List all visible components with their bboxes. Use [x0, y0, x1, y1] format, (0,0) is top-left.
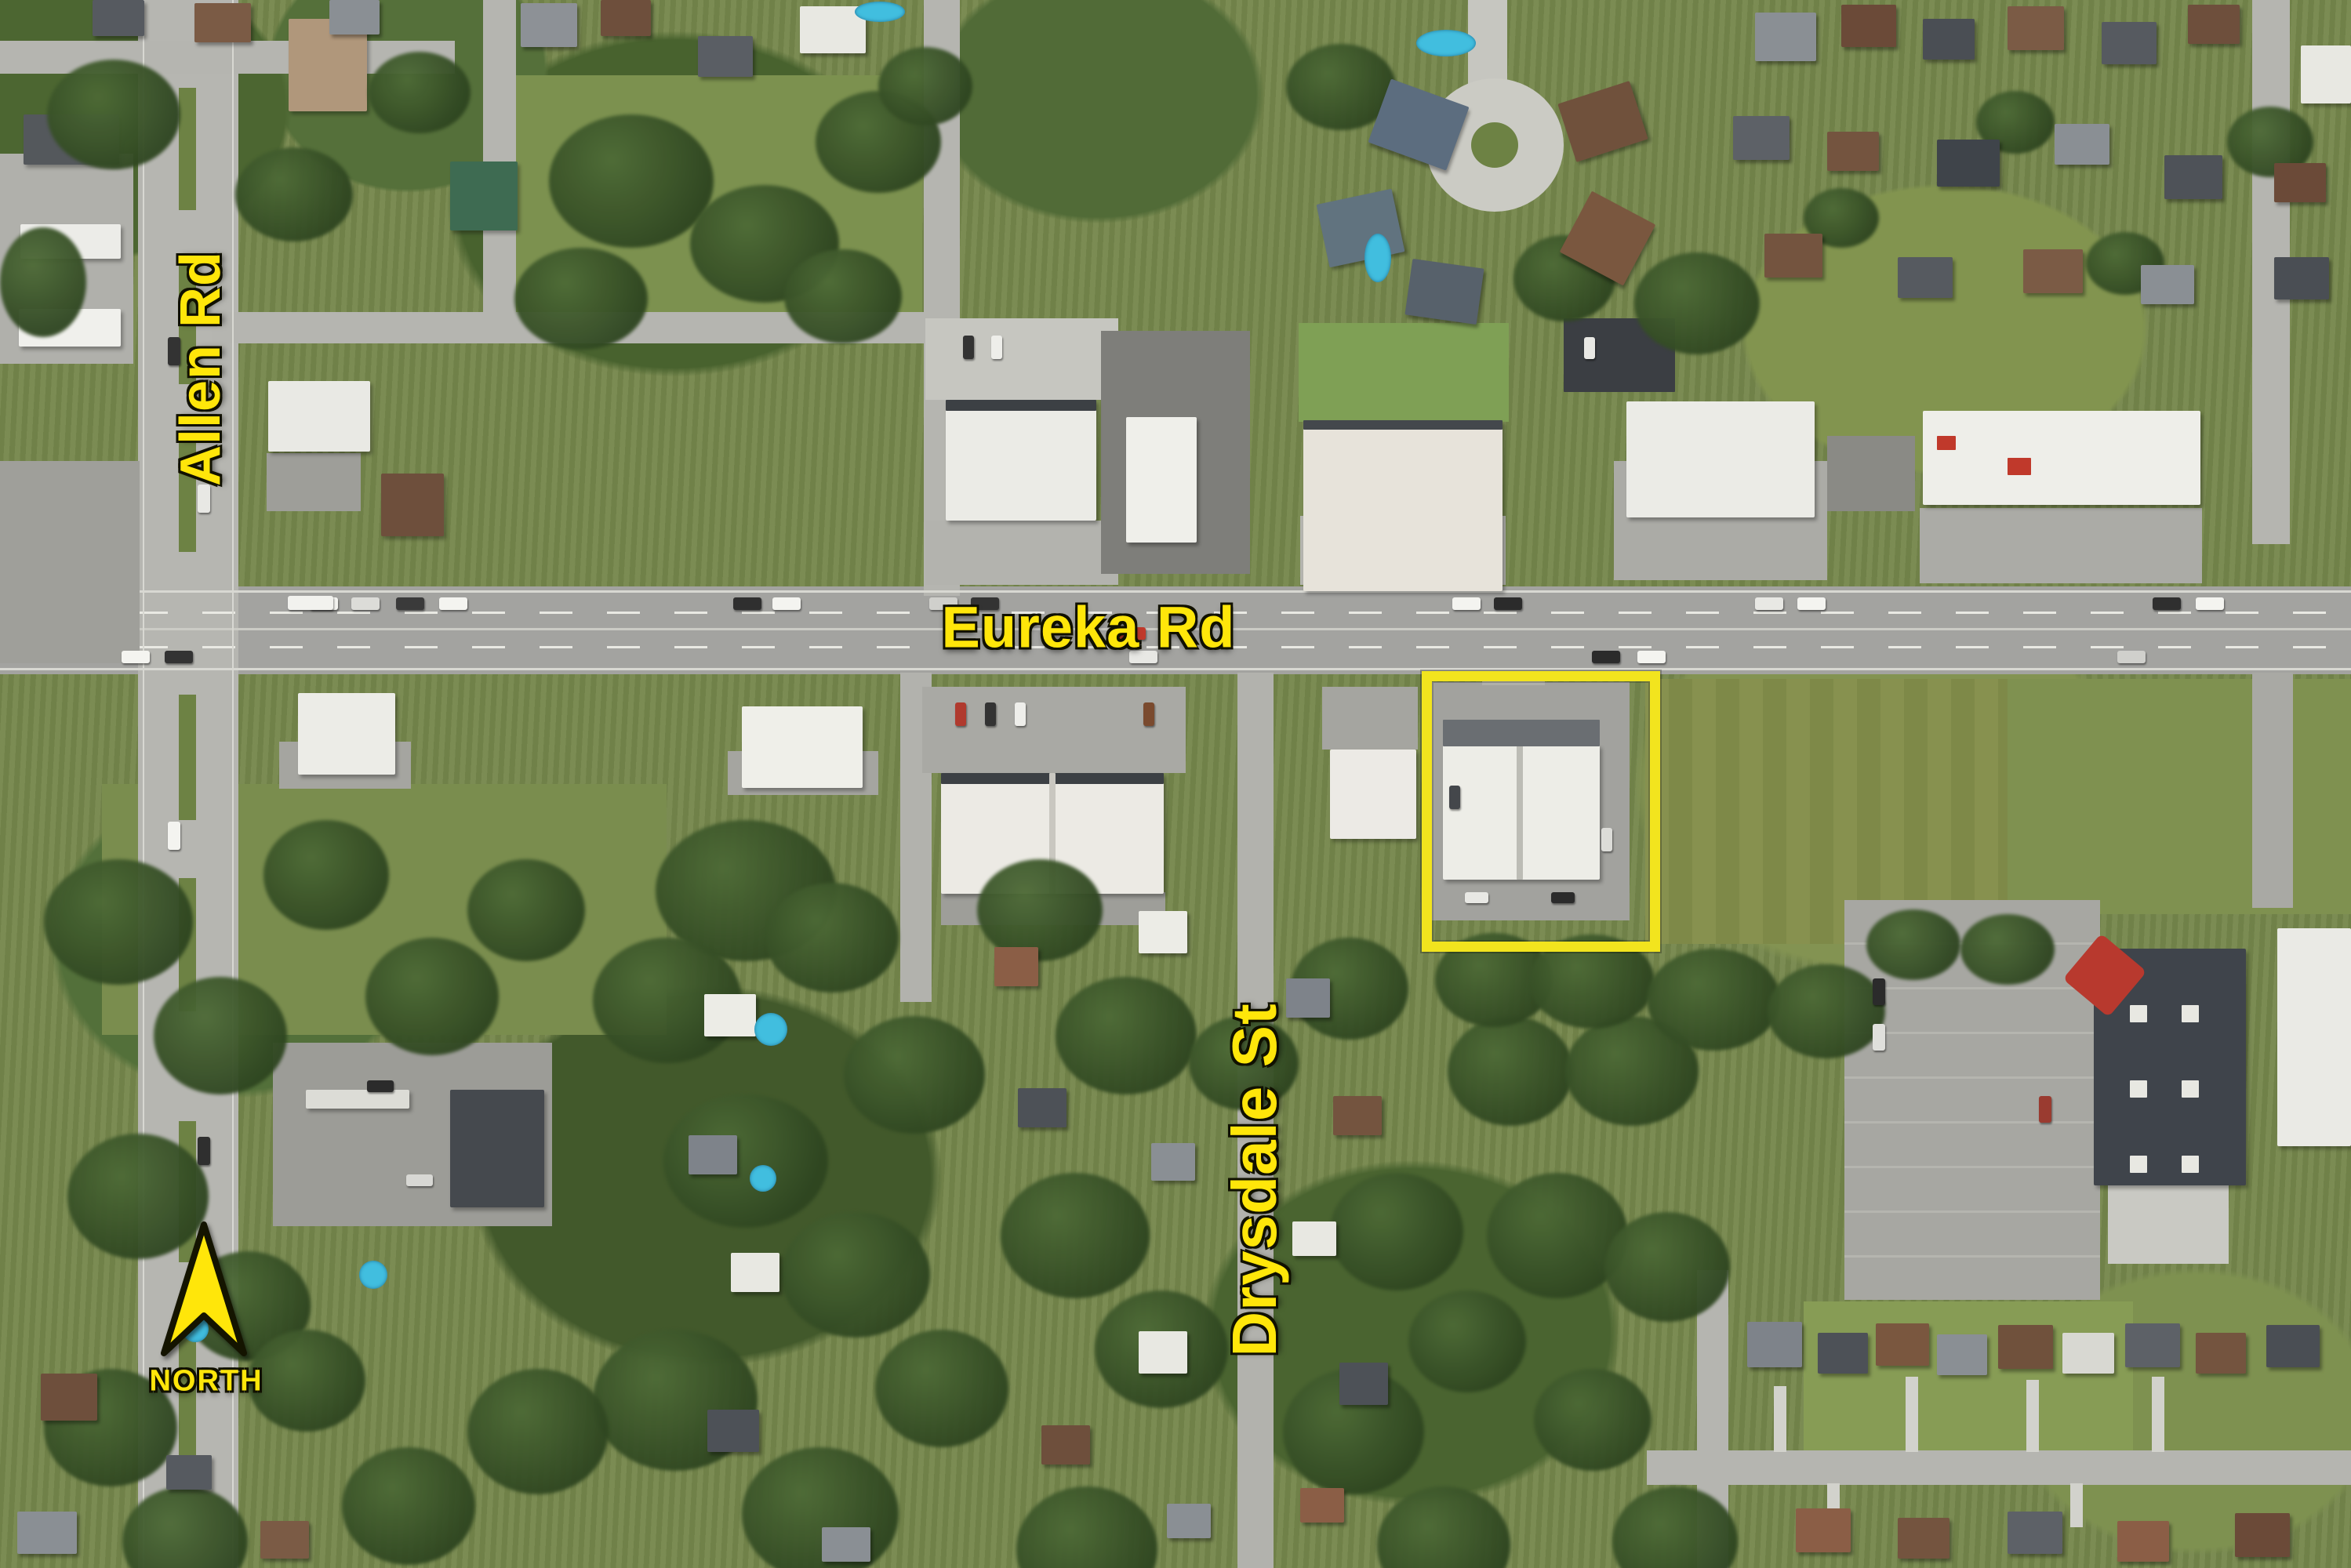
- driveway-1: [1774, 1386, 1786, 1452]
- car: [168, 822, 180, 850]
- house: [1292, 1221, 1336, 1256]
- house: [329, 0, 380, 34]
- hotel-skylight: [2130, 1156, 2147, 1173]
- house: [194, 3, 251, 42]
- pool: [754, 1013, 787, 1046]
- house: [1733, 116, 1790, 160]
- house: [1404, 259, 1484, 325]
- culdesac-island: [1471, 122, 1518, 168]
- hotel-skylight: [2182, 1156, 2199, 1173]
- car: [1584, 337, 1595, 359]
- allen-median-island-1: [179, 88, 196, 210]
- car: [1015, 702, 1026, 726]
- tree: [369, 52, 471, 133]
- car: [1873, 1024, 1885, 1051]
- house: [731, 1253, 779, 1292]
- pool: [1364, 234, 1391, 282]
- pool: [750, 1165, 776, 1192]
- drysdale-st-label: Drysdale St: [1219, 1003, 1291, 1356]
- parking-north-e-front: [1920, 508, 2202, 583]
- car: [963, 336, 974, 359]
- building-south-a: [298, 693, 395, 775]
- house: [698, 36, 753, 77]
- house: [2188, 5, 2240, 44]
- house: [1139, 1331, 1187, 1374]
- building-west-of-subject: [1330, 750, 1416, 839]
- street-southeast-horizontal: [1647, 1450, 2351, 1485]
- house: [1333, 1096, 1382, 1135]
- car: [1637, 651, 1666, 663]
- tree: [1001, 1173, 1150, 1298]
- tree: [1330, 1173, 1463, 1290]
- house: [1923, 19, 1975, 60]
- tree: [1016, 1486, 1157, 1568]
- house: [93, 0, 144, 36]
- tree: [1634, 252, 1760, 354]
- tree: [765, 883, 899, 993]
- house: [1937, 1334, 1987, 1375]
- building-ne-corner-white: [2301, 45, 2351, 103]
- tree: [235, 147, 353, 241]
- car: [991, 336, 1002, 359]
- building-south-b: [742, 706, 863, 788]
- car: [2196, 597, 2224, 610]
- house: [1300, 1488, 1344, 1523]
- house: [1286, 978, 1330, 1018]
- tree: [1448, 1016, 1573, 1126]
- house: [1937, 140, 2000, 187]
- driveway-3: [2026, 1380, 2039, 1452]
- house: [2141, 265, 2194, 304]
- car: [1494, 597, 1522, 610]
- parking-strip-mall-front: [922, 687, 1186, 773]
- hotel-skylight: [2130, 1080, 2147, 1098]
- house: [2274, 257, 2329, 299]
- house: [166, 1455, 212, 1490]
- house: [1041, 1425, 1090, 1465]
- car: [1452, 597, 1481, 610]
- house: [1018, 1088, 1066, 1127]
- property-highlight-box: [1422, 671, 1660, 952]
- house: [2266, 1325, 2320, 1367]
- tree: [154, 977, 287, 1094]
- tree: [263, 820, 389, 930]
- aerial-map: Allen Rd Eureka Rd Drysdale St NORTH: [0, 0, 2351, 1568]
- house: [1747, 1322, 1802, 1367]
- car: [351, 597, 380, 610]
- house: [2102, 22, 2157, 64]
- car: [198, 1137, 210, 1165]
- house: [521, 3, 577, 47]
- parking-sw-of-intersection: [0, 461, 140, 663]
- tree: [342, 1447, 475, 1565]
- car: [2039, 1096, 2051, 1123]
- house: [601, 0, 651, 36]
- tree: [977, 859, 1103, 961]
- house: [1151, 1143, 1195, 1181]
- house: [1764, 234, 1822, 278]
- building-north-c-trim: [1303, 420, 1503, 430]
- car: [1873, 978, 1885, 1005]
- building-brown-se-allen: [381, 474, 444, 536]
- parking-north-a-front: [925, 318, 1118, 400]
- driveway-2: [1906, 1377, 1918, 1452]
- house: [2062, 1333, 2114, 1374]
- building-north-a: [946, 400, 1096, 521]
- tree: [781, 1212, 930, 1338]
- house: [689, 1135, 737, 1174]
- car: [198, 485, 210, 513]
- tree: [875, 1330, 1008, 1447]
- hotel-entrance-drive: [2252, 673, 2293, 908]
- car: [955, 702, 966, 726]
- car: [396, 597, 424, 610]
- allen-west-edge-line: [143, 0, 144, 1568]
- tree: [784, 249, 902, 343]
- tree: [549, 114, 714, 248]
- tree: [1647, 949, 1780, 1051]
- house: [822, 1527, 870, 1562]
- building-green-roof: [450, 162, 518, 230]
- house: [2008, 1512, 2062, 1554]
- car: [1797, 597, 1826, 610]
- driveway-4: [2152, 1377, 2164, 1452]
- lawn-north-of-big-box: [1299, 323, 1509, 422]
- tree: [1604, 1212, 1730, 1322]
- tree: [878, 47, 972, 125]
- eureka-north-edge-line: [0, 590, 2351, 593]
- building-north-d: [1626, 401, 1815, 517]
- tree: [365, 938, 499, 1055]
- house: [260, 1521, 309, 1559]
- tree: [1408, 1290, 1526, 1392]
- house: [41, 1374, 97, 1421]
- car: [2153, 597, 2181, 610]
- house: [1755, 13, 1816, 61]
- allen-median-island-4: [179, 695, 196, 820]
- car: [1143, 702, 1154, 726]
- house: [2023, 249, 2083, 293]
- house: [2164, 155, 2222, 199]
- driveway-6: [2070, 1483, 2083, 1527]
- house: [2008, 6, 2064, 50]
- tree: [1377, 1486, 1510, 1568]
- house: [1339, 1363, 1388, 1405]
- tree: [1866, 909, 1960, 980]
- pool: [855, 2, 905, 22]
- car: [406, 1174, 433, 1186]
- building-north-e: [1923, 411, 2200, 505]
- car: [1592, 651, 1620, 663]
- lawn-hotel-south: [1804, 1301, 2133, 1450]
- eureka-rd-label: Eureka Rd: [941, 594, 1235, 661]
- house: [1898, 257, 1953, 298]
- car: [367, 1080, 394, 1092]
- car: [772, 597, 801, 610]
- car: [288, 596, 333, 610]
- house: [1876, 1323, 1929, 1366]
- house: [994, 947, 1038, 986]
- car: [165, 651, 193, 663]
- tree: [1960, 914, 2055, 985]
- house: [2117, 1521, 2169, 1562]
- house: [2125, 1323, 2180, 1367]
- house: [1998, 1325, 2053, 1369]
- building-north-c: [1303, 420, 1503, 591]
- car: [2117, 651, 2146, 663]
- church-carport: [306, 1090, 409, 1109]
- building-north-a-trim: [946, 400, 1096, 411]
- car: [1755, 597, 1783, 610]
- hotel-skylight: [2182, 1005, 2199, 1022]
- car: [985, 702, 996, 726]
- tree: [1534, 1369, 1652, 1471]
- hotel-plaza: [2108, 1182, 2229, 1264]
- house: [707, 1410, 759, 1452]
- tree: [467, 1369, 609, 1494]
- house: [2196, 1333, 2246, 1374]
- building-church: [450, 1090, 544, 1207]
- house: [1827, 132, 1879, 171]
- hotel-skylight: [2182, 1080, 2199, 1098]
- tree: [248, 1330, 365, 1432]
- tree: [1768, 964, 1885, 1058]
- house: [1139, 911, 1187, 953]
- allen-rd-label: Allen Rd: [169, 251, 233, 486]
- pool: [359, 1261, 387, 1289]
- hotel-skylight: [2130, 1005, 2147, 1022]
- house: [1898, 1518, 1949, 1559]
- parking-ne-small-dark: [1827, 436, 1915, 511]
- house: [704, 994, 756, 1036]
- lawn-right-mid: [2008, 679, 2351, 914]
- house: [1796, 1508, 1851, 1552]
- north-e-red-accent-2: [1937, 436, 1956, 450]
- pool: [1416, 30, 1476, 56]
- north-arrow-icon: [159, 1220, 249, 1366]
- parking-west-of-subject: [1322, 687, 1418, 750]
- building-gas-station: [268, 381, 370, 452]
- building-north-b: [1126, 417, 1197, 543]
- house: [1167, 1504, 1211, 1538]
- house: [2055, 124, 2109, 165]
- tree: [44, 859, 193, 985]
- parking-north-a-rear: [925, 521, 1118, 585]
- tree: [0, 227, 86, 337]
- house: [1317, 189, 1405, 268]
- house: [2235, 1513, 2290, 1557]
- eureka-south-edge-line: [0, 668, 2351, 670]
- house: [1841, 5, 1896, 47]
- tree: [1056, 977, 1197, 1094]
- tree: [742, 1447, 899, 1568]
- house: [17, 1512, 77, 1554]
- tree: [467, 859, 585, 961]
- north-e-red-accent-1: [2008, 458, 2031, 475]
- building-right-edge-white: [2277, 928, 2351, 1146]
- car: [122, 651, 150, 663]
- car: [439, 597, 467, 610]
- house: [1557, 81, 1648, 162]
- north-label: NORTH: [149, 1365, 263, 1399]
- car: [733, 597, 761, 610]
- parking-gas-station: [267, 453, 361, 511]
- house: [1818, 1333, 1868, 1374]
- tree: [514, 248, 648, 350]
- tree: [844, 1016, 985, 1134]
- tree: [47, 60, 180, 169]
- house: [2274, 163, 2326, 202]
